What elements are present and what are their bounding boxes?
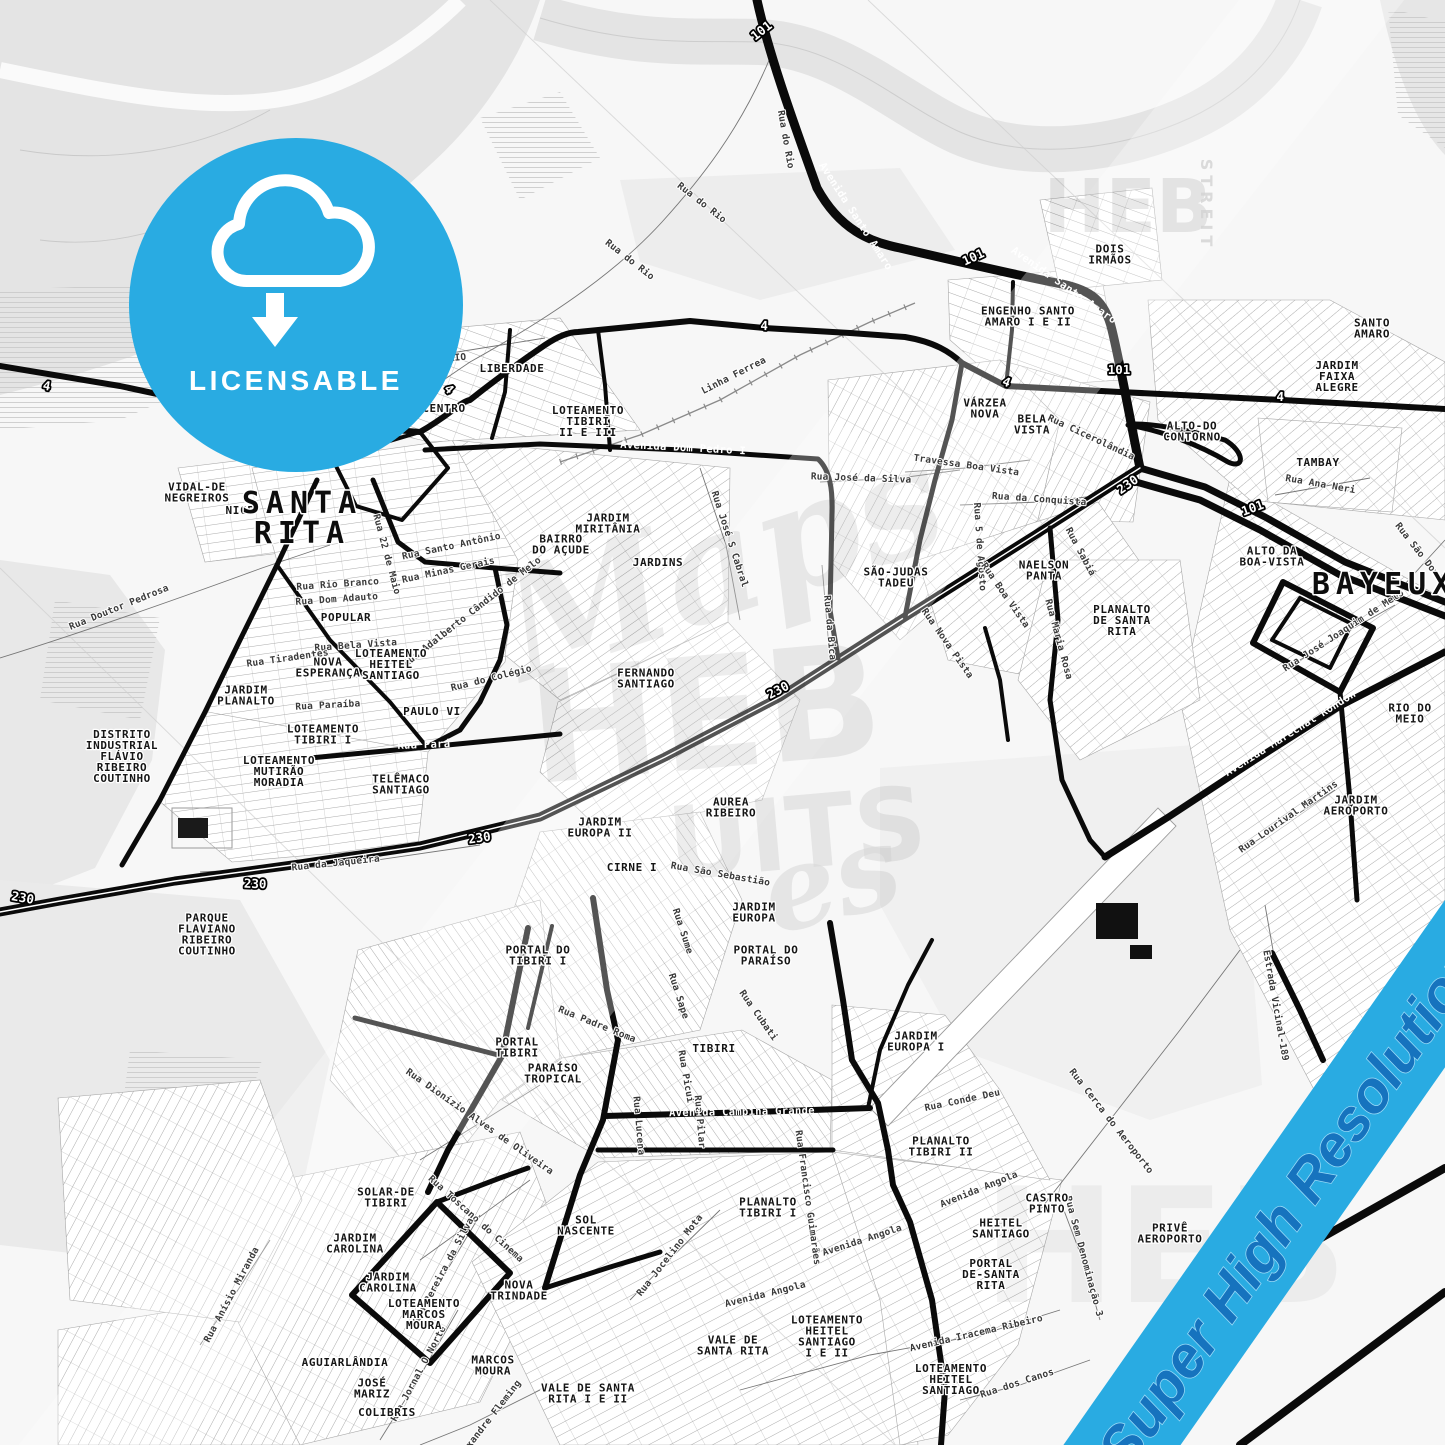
neighborhood-label: JARDIMEUROPA (732, 901, 775, 925)
neighborhood-label: BAIRRODO AÇUDE (532, 533, 590, 557)
watermark-text: HEB (1044, 164, 1213, 250)
highway-shield: 230 (467, 829, 491, 847)
neighborhood-label: MARCOSMOURA (471, 1354, 514, 1378)
neighborhood-label: JARDINS (633, 556, 684, 569)
street-label-on-road: Avenida Campina Grande (669, 1105, 815, 1120)
highway-shield: 230 (244, 876, 267, 892)
neighborhood-label: NAELSONPANTA (1019, 559, 1070, 583)
neighborhood-label: PORTAL DOTIBIRI I (505, 944, 570, 968)
city-label: SANTARITA (242, 486, 362, 551)
neighborhood-label: PORTAL DOPARAÍSO (733, 944, 798, 968)
neighborhood-label: JOSÉMARIZ (354, 1377, 390, 1401)
neighborhood-label: JARDIMPLANALTO (217, 684, 275, 708)
neighborhood-label: LIBERDADE (479, 362, 544, 375)
neighborhood-label: BELAVISTA (1014, 413, 1050, 437)
neighborhood-label: PARAÍSOTROPICAL (524, 1062, 582, 1086)
neighborhood-label: CIRNE I (607, 861, 658, 874)
neighborhood-label: SANTOAMARO (1354, 317, 1390, 341)
neighborhood-label: AGUIARLÂNDIA (302, 1356, 389, 1369)
neighborhood-label: PARQUEFLAVIANORIBEIROCOUTINHO (178, 912, 236, 958)
neighborhood-label: ENGENHO SANTOAMARO I E II (981, 305, 1075, 329)
neighborhood-label: JARDIMCAROLINA (359, 1271, 417, 1295)
neighborhood-label: PLANALTOTIBIRI II (908, 1135, 973, 1159)
neighborhood-label: JARDIMFAIXAALEGRE (1315, 359, 1358, 394)
neighborhood-label: JARDIMCAROLINA (326, 1232, 384, 1256)
badge-label: LICENSABLE (189, 365, 403, 396)
city-label: BAYEUX (1312, 567, 1445, 602)
licensable-badge[interactable]: LICENSABLE (129, 138, 463, 472)
neighborhood-label: PAULO VI (403, 705, 461, 718)
neighborhood-label: ALTO-DOCONTORNO (1163, 420, 1221, 444)
watermark-text: STREIT (1197, 159, 1216, 252)
neighborhood-label: TAMBAY (1296, 456, 1339, 469)
neighborhood-label: VALE DE SANTARITA I E II (541, 1382, 635, 1406)
neighborhood-label: PLANALTOTIBIRI I (739, 1196, 797, 1220)
highway-shield: 101 (1108, 362, 1131, 377)
neighborhood-label: COLIBRIS (358, 1406, 416, 1419)
neighborhood-label: CASTROPINTO (1025, 1192, 1068, 1216)
highway-shield: 4 (1276, 389, 1284, 404)
neighborhood-label: FERNANDOSANTIAGO (617, 667, 675, 691)
neighborhood-label: AUREARIBEIRO (706, 796, 757, 820)
neighborhood-label: TIBIRI (692, 1042, 735, 1055)
neighborhood-label: LOTEAMENTOTIBIRI I (287, 723, 359, 747)
neighborhood-label: SOLAR-DETIBIRI (357, 1186, 415, 1210)
highway-shield: 4 (760, 318, 768, 333)
neighborhood-label: PORTALTIBIRI (495, 1036, 538, 1060)
neighborhood-label: JARDIMEUROPA I (887, 1030, 945, 1054)
map-canvas: HEBSTREITMapsHEBUITSesHEB Rua do RioRua … (0, 0, 1445, 1445)
neighborhood-label: VIDAL-DENEGREIROS (164, 481, 229, 505)
street-label-on-road: Rua Pará (397, 738, 450, 752)
neighborhood-label: HEITELSANTIAGO (972, 1217, 1030, 1241)
neighborhood-label: ALTO DABOA-VISTA (1239, 545, 1304, 569)
neighborhood-label: TELÊMACOSANTIAGO (372, 773, 430, 797)
neighborhood-label: POPULAR (321, 611, 372, 624)
